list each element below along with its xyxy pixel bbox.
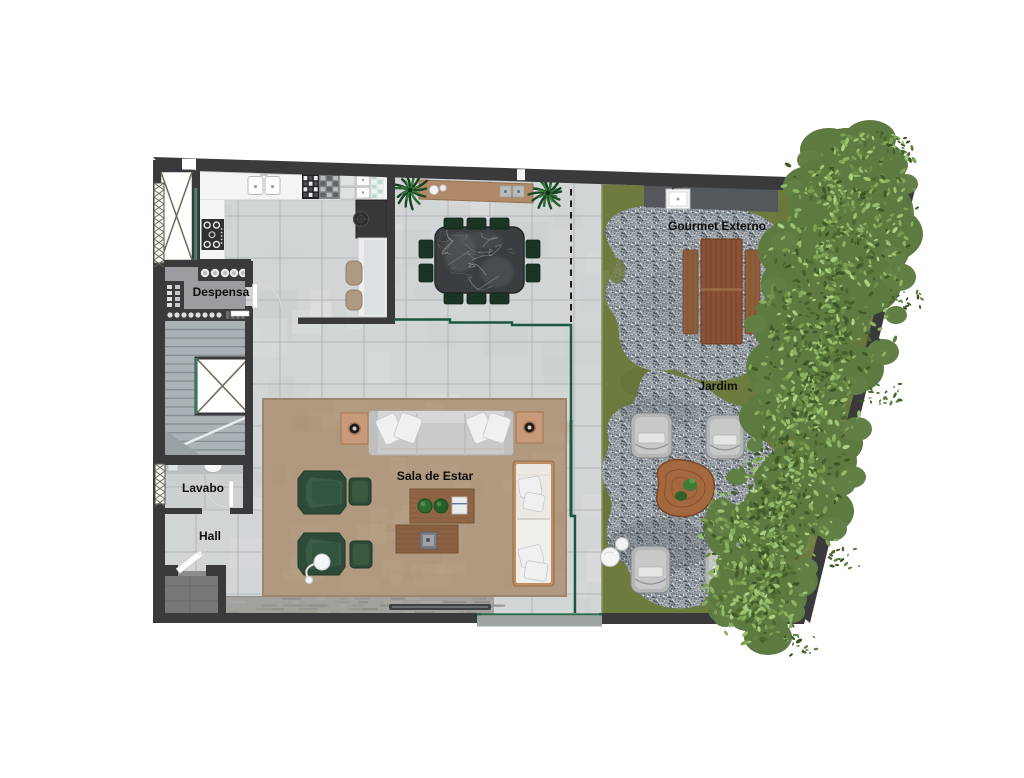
svg-text:Hall: Hall [199, 529, 221, 543]
svg-text:Lavabo: Lavabo [182, 481, 224, 495]
svg-text:Jardim: Jardim [698, 379, 737, 393]
svg-text:Despensa: Despensa [193, 285, 250, 299]
svg-text:Sala de Estar: Sala de Estar [397, 469, 474, 483]
svg-text:Gourmet Externo: Gourmet Externo [668, 219, 766, 233]
